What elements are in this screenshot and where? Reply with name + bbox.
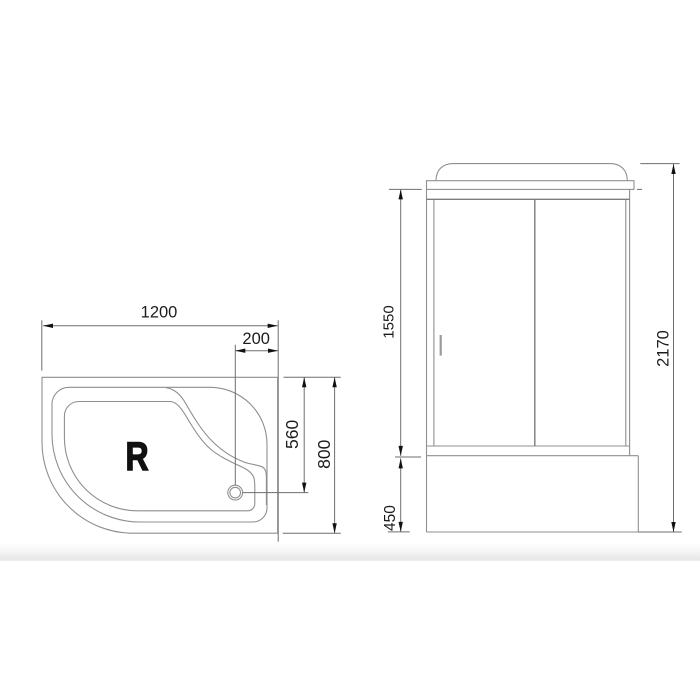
svg-text:200: 200: [242, 330, 270, 348]
svg-text:1200: 1200: [141, 303, 178, 321]
svg-text:560: 560: [282, 420, 302, 449]
svg-text:450: 450: [382, 505, 399, 531]
svg-text:800: 800: [314, 439, 334, 468]
svg-text:1550: 1550: [381, 305, 398, 338]
svg-text:R: R: [125, 434, 148, 479]
svg-text:2170: 2170: [654, 330, 672, 367]
